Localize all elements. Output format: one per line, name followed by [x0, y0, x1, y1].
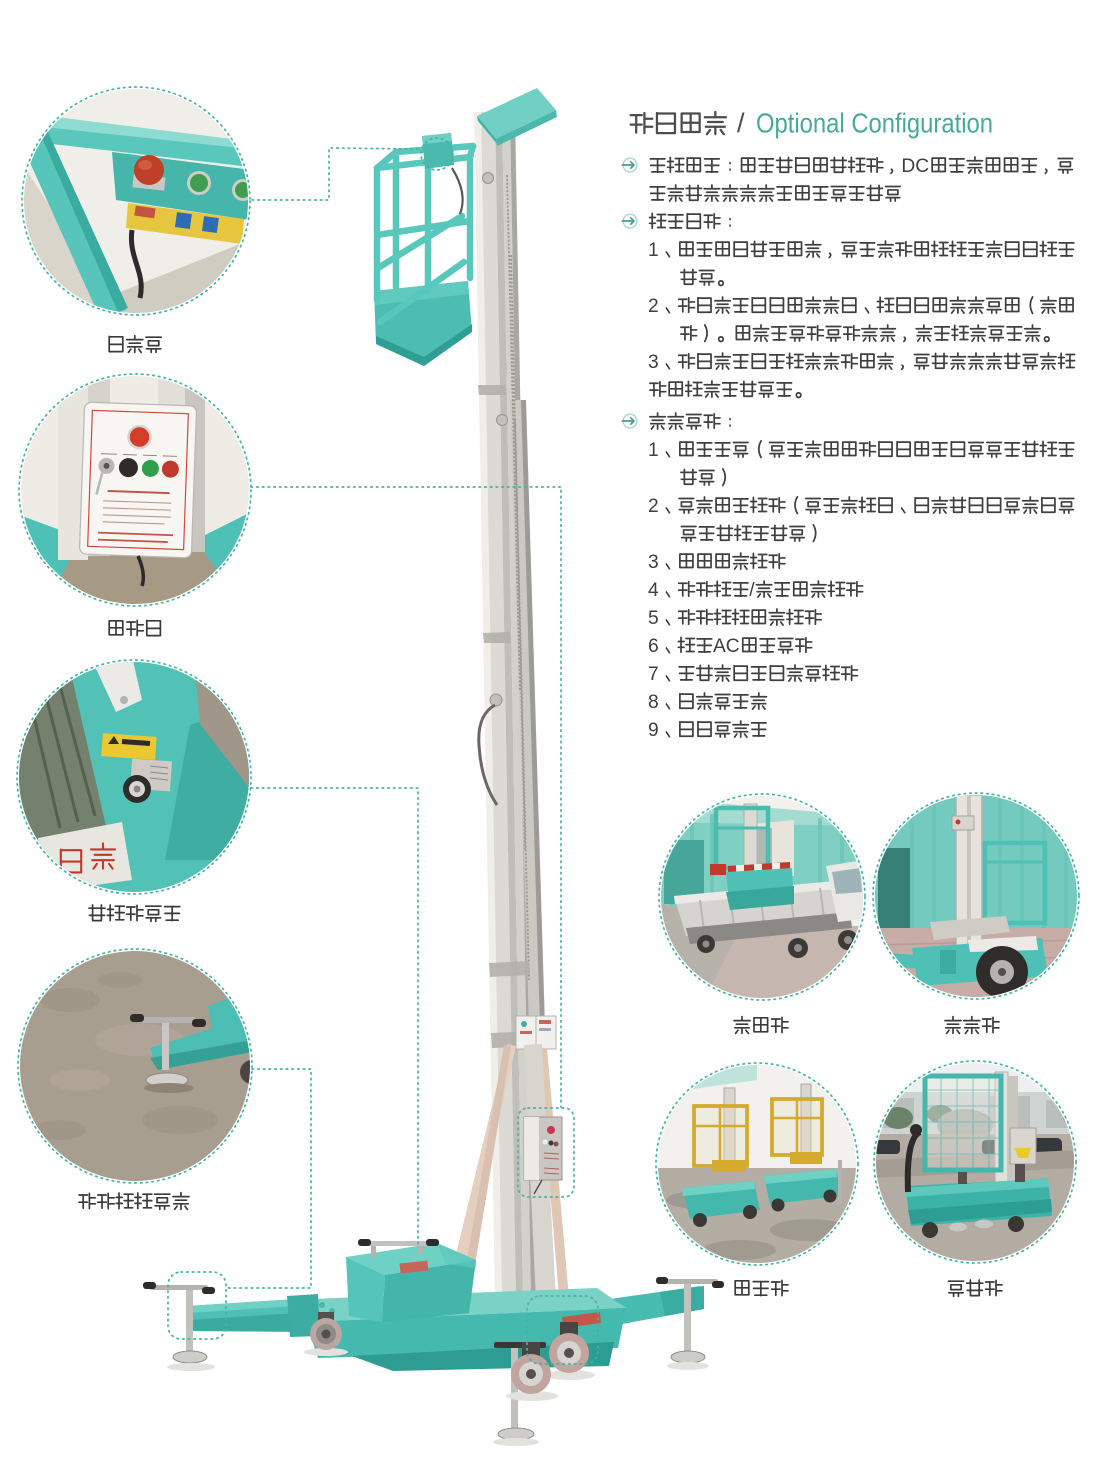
svg-text:1: 1 — [648, 440, 659, 461]
svg-text:AC: AC — [713, 636, 740, 657]
svg-text:6: 6 — [648, 636, 659, 657]
svg-text:9: 9 — [648, 720, 659, 741]
svg-text:1: 1 — [648, 240, 659, 261]
svg-text:2: 2 — [648, 496, 659, 517]
svg-text:/: / — [749, 580, 755, 601]
svg-text:8: 8 — [648, 692, 659, 713]
svg-text:3: 3 — [648, 552, 659, 573]
svg-text:Optional Configuration: Optional Configuration — [756, 108, 993, 139]
svg-text:DC: DC — [901, 156, 929, 177]
svg-text:/: / — [737, 108, 745, 138]
svg-text:4: 4 — [648, 580, 659, 601]
svg-text:7: 7 — [648, 664, 659, 685]
svg-text:2: 2 — [648, 296, 659, 317]
svg-text:3: 3 — [648, 352, 659, 373]
svg-text:5: 5 — [648, 608, 659, 629]
